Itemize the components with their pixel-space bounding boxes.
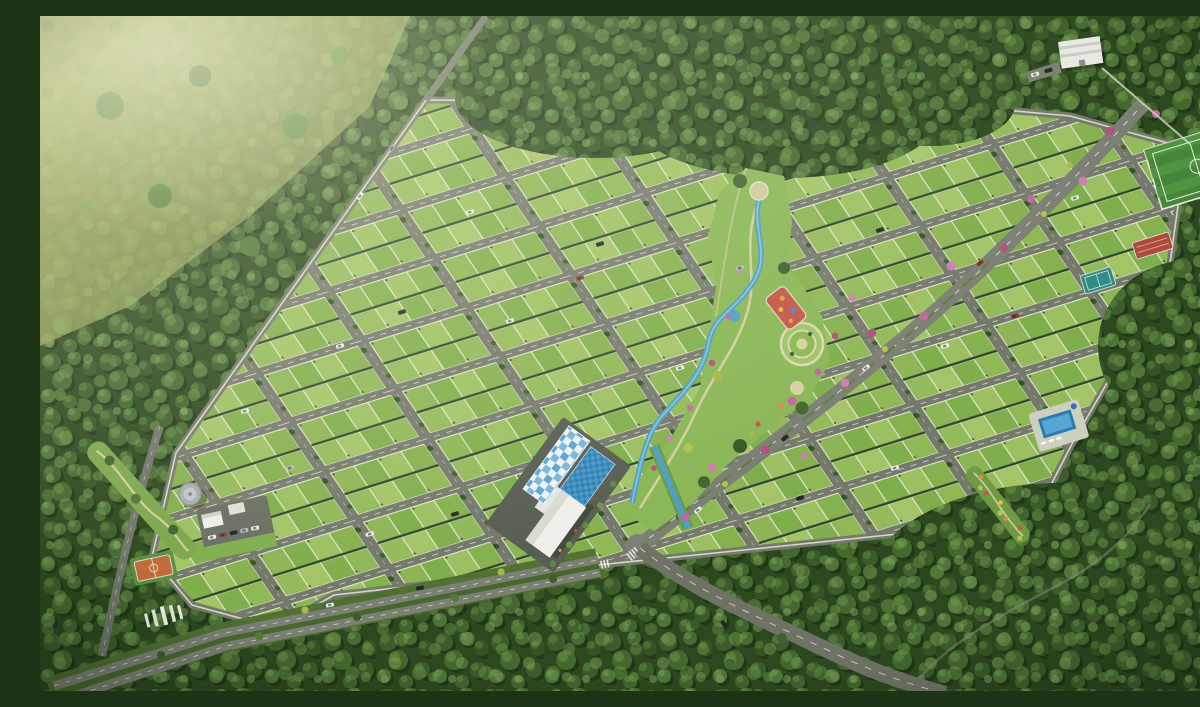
atmosphere [40,16,1200,691]
scene-canvas [40,16,1200,691]
aerial-render [40,16,1200,691]
